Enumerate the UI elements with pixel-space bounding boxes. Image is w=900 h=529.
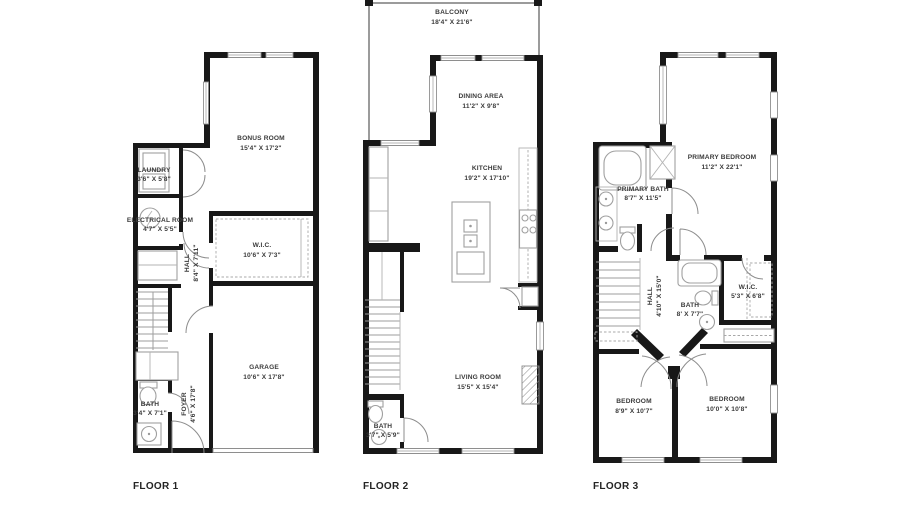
room-dims: 15'4" X 17'2" — [240, 145, 281, 152]
bedroom-closet — [724, 329, 774, 342]
room-label-bonus: BONUS ROOM 15'4" X 17'2" — [237, 135, 285, 152]
plan-shape — [469, 225, 472, 228]
room-dims: 8' X 7'7" — [677, 311, 704, 318]
plan-shape — [363, 243, 420, 252]
plan-shape — [593, 457, 777, 463]
room-label-primary-bedroom: PRIMARY BEDROOM 11'2" X 22'1" — [688, 154, 757, 171]
fireplace — [522, 366, 539, 404]
window — [771, 155, 778, 181]
plan-shape — [369, 406, 383, 423]
room-label-dining: DINING AREA 11'2" X 9'8" — [459, 93, 504, 110]
double-vanity — [596, 187, 617, 241]
plan-shape — [133, 246, 181, 250]
plan-shape — [469, 240, 472, 243]
plan-shape — [660, 52, 777, 58]
floor-3-label: FLOOR 3 — [593, 481, 639, 492]
floor-2-label: FLOOR 2 — [363, 481, 409, 492]
room-label-bedroom-right: BEDROOM 10'0" X 10'8" — [706, 396, 747, 413]
plan-shape — [672, 376, 678, 463]
plan-shape — [666, 214, 672, 255]
room-dims: 4'10" X 15'0" — [656, 275, 663, 316]
room-label-foyer: FOYER 4'6" X 17'8" — [181, 385, 197, 423]
room-dims: 4'6" X 17'8" — [190, 385, 197, 423]
room-name: KITCHEN — [472, 165, 502, 172]
bathtub-fixture — [599, 146, 646, 190]
shower-fixture — [650, 146, 675, 179]
room-label-hall: HALL 4'10" X 15'0" — [647, 275, 663, 316]
plan-shape — [313, 52, 319, 453]
room-label-balcony: BALCONY 18'4" X 21'6" — [431, 9, 472, 26]
room-label-bedroom-left: BEDROOM 8'9" X 10'7" — [615, 398, 653, 415]
stairs — [595, 258, 640, 341]
room-name: BALCONY — [435, 9, 469, 16]
room-name: HALL — [184, 254, 191, 272]
plan-shape — [204, 52, 319, 58]
room-dims: 10'6" X 17'8" — [243, 374, 284, 381]
room-dims: 19'2" X 17'10" — [464, 175, 509, 182]
plan-shape — [538, 2, 540, 57]
floor-1-label: FLOOR 1 — [133, 481, 179, 492]
plan-shape — [400, 252, 404, 312]
room-label-wic: W.I.C. 5'3" X 6'8" — [731, 284, 765, 300]
room-dims: 11'2" X 22'1" — [701, 164, 742, 171]
room-name: BEDROOM — [616, 398, 652, 405]
room-name: DINING AREA — [459, 93, 504, 100]
door-arc — [500, 288, 520, 308]
room-name: BATH — [681, 302, 700, 309]
room-label-primary-bath: PRIMARY BATH 8'7" X 11'5" — [617, 186, 669, 202]
plan-shape — [365, 0, 373, 6]
plan-shape — [605, 198, 607, 200]
room-label-living: LIVING ROOM 15'5" X 15'4" — [455, 374, 501, 391]
room-dims: 10'0" X 10'8" — [706, 406, 747, 413]
plan-shape — [209, 211, 213, 243]
room-name: PRIMARY BEDROOM — [688, 154, 757, 161]
plan-shape — [209, 281, 319, 286]
room-name: LIVING ROOM — [455, 374, 501, 381]
door-arc — [672, 188, 698, 214]
door-arc — [186, 306, 213, 333]
pantry-closet — [522, 287, 538, 306]
plan-shape — [712, 291, 718, 305]
plan-shape — [148, 433, 150, 435]
room-name: LAUNDRY — [137, 167, 170, 174]
window — [771, 92, 778, 118]
room-dims: 18'4" X 21'6" — [431, 19, 472, 26]
room-name: BEDROOM — [709, 396, 745, 403]
plan-shape — [369, 147, 388, 241]
plan-shape — [365, 300, 400, 384]
plan-shape — [136, 292, 168, 348]
room-dims: 15'5" X 15'4" — [457, 384, 498, 391]
plan-shape — [530, 215, 536, 221]
room-name: ELECTRICAL ROOM — [127, 217, 194, 224]
kitchen-island — [452, 202, 490, 282]
door-arc — [641, 357, 670, 387]
plan-shape — [133, 194, 181, 198]
room-name: FOYER — [181, 392, 188, 416]
plan-shape — [621, 232, 635, 250]
plan-shape — [637, 224, 642, 252]
plan-shape — [518, 306, 539, 310]
plan-shape — [133, 143, 210, 148]
plan-shape — [596, 262, 640, 326]
room-name: BATH — [141, 401, 160, 408]
plan-shape — [400, 394, 404, 418]
room-dims: 10'6" X 7'3" — [243, 252, 281, 259]
plan-shape — [593, 349, 639, 354]
door-arc — [680, 229, 706, 255]
plan-shape — [363, 448, 543, 454]
room-dims: 5'3" X 6'8" — [731, 293, 765, 300]
stairs — [136, 292, 168, 350]
stairs — [365, 252, 400, 390]
room-name: W.I.C. — [739, 284, 758, 291]
plan-shape — [764, 255, 777, 261]
plan-shape — [138, 251, 177, 280]
room-label-hall: HALL 8'4" X 7'11" — [184, 244, 200, 281]
floor-plan-svg: BONUS ROOM 15'4" X 17'2" LAUNDRY 3'6" X … — [0, 0, 900, 529]
range-fixture — [520, 210, 537, 248]
plan-shape — [595, 332, 637, 341]
plan-shape — [682, 263, 717, 283]
plan-shape — [530, 227, 536, 233]
plan-shape — [179, 146, 183, 198]
door-arc — [742, 258, 763, 279]
plan-shape — [133, 284, 181, 288]
plan-shape — [209, 211, 319, 216]
room-name: HALL — [647, 287, 654, 305]
floor-2-doors — [404, 288, 520, 442]
room-dims: 11'2" X 9'8" — [462, 103, 499, 110]
floor-1-plan: BONUS ROOM 15'4" X 17'2" LAUNDRY 3'6" X … — [127, 52, 319, 492]
plan-shape — [179, 198, 183, 232]
garage-door — [213, 449, 313, 453]
plan-shape — [593, 246, 618, 252]
room-dims: 3'4" X 7'1" — [133, 410, 167, 417]
plan-shape — [457, 252, 484, 274]
plan-shape — [368, 2, 540, 4]
plan-shape — [604, 151, 641, 185]
room-name: PRIMARY BATH — [617, 186, 669, 193]
closet-shelf — [138, 251, 177, 280]
floor-3-plan: PRIMARY BEDROOM 11'2" X 22'1" PRIMARY BA… — [593, 52, 778, 492]
plan-shape — [179, 244, 183, 250]
plan-shape — [719, 320, 777, 325]
room-dims: 8'4" X 7'11" — [193, 244, 200, 281]
plan-shape — [209, 286, 213, 306]
room-dims: 8'9" X 10'7" — [615, 408, 653, 415]
plan-shape — [518, 283, 539, 287]
room-label-garage: GARAGE 10'6" X 17'8" — [243, 364, 284, 381]
plan-shape — [363, 394, 404, 400]
plan-shape — [136, 352, 178, 380]
room-dims: 3'6" X 5'8" — [137, 176, 171, 183]
door-arc — [404, 418, 428, 442]
plan-shape — [522, 215, 528, 221]
room-dims: 8'7" X 11'5" — [624, 195, 661, 202]
plan-shape — [368, 2, 370, 142]
room-name: BATH — [374, 423, 393, 430]
floor-plan-image: BONUS ROOM 15'4" X 17'2" LAUNDRY 3'6" X … — [0, 0, 900, 529]
room-label-wic: W.I.C. 10'6" X 7'3" — [243, 242, 281, 259]
toilet-fixture — [620, 227, 635, 250]
plan-shape — [209, 333, 213, 453]
toilet-fixture — [368, 401, 383, 423]
plan-shape — [133, 143, 138, 453]
plan-shape — [706, 321, 708, 323]
plan-shape — [666, 255, 680, 261]
door-arc — [183, 150, 205, 197]
room-dims: 4'7" X 5'5" — [143, 226, 177, 233]
room-name: W.I.C. — [253, 242, 272, 249]
bathtub-fixture — [678, 260, 721, 286]
room-name: GARAGE — [249, 364, 279, 371]
plan-shape — [631, 329, 664, 361]
room-label-bath: BATH 3'4" X 7'1" — [133, 401, 167, 417]
plan-shape — [522, 227, 528, 233]
sink-fixture — [137, 423, 161, 445]
understair-closet — [136, 352, 178, 380]
floor-1-windows — [204, 53, 294, 125]
plan-shape — [679, 328, 708, 357]
plan-shape — [534, 0, 542, 6]
plan-shape — [605, 222, 607, 224]
entry-closet — [369, 147, 388, 241]
window — [771, 385, 778, 413]
room-dims: 3'7" X 5'9" — [366, 432, 400, 439]
room-name: BONUS ROOM — [237, 135, 285, 142]
plan-shape — [168, 286, 172, 332]
plan-shape — [168, 412, 172, 453]
door-arc — [679, 355, 707, 386]
room-label-kitchen: KITCHEN 19'2" X 17'10" — [464, 165, 509, 182]
floor-2-plan: BALCONY 18'4" X 21'6" DINING AREA 11'2" … — [363, 0, 544, 492]
plan-shape — [700, 344, 777, 349]
plan-shape — [209, 268, 213, 286]
